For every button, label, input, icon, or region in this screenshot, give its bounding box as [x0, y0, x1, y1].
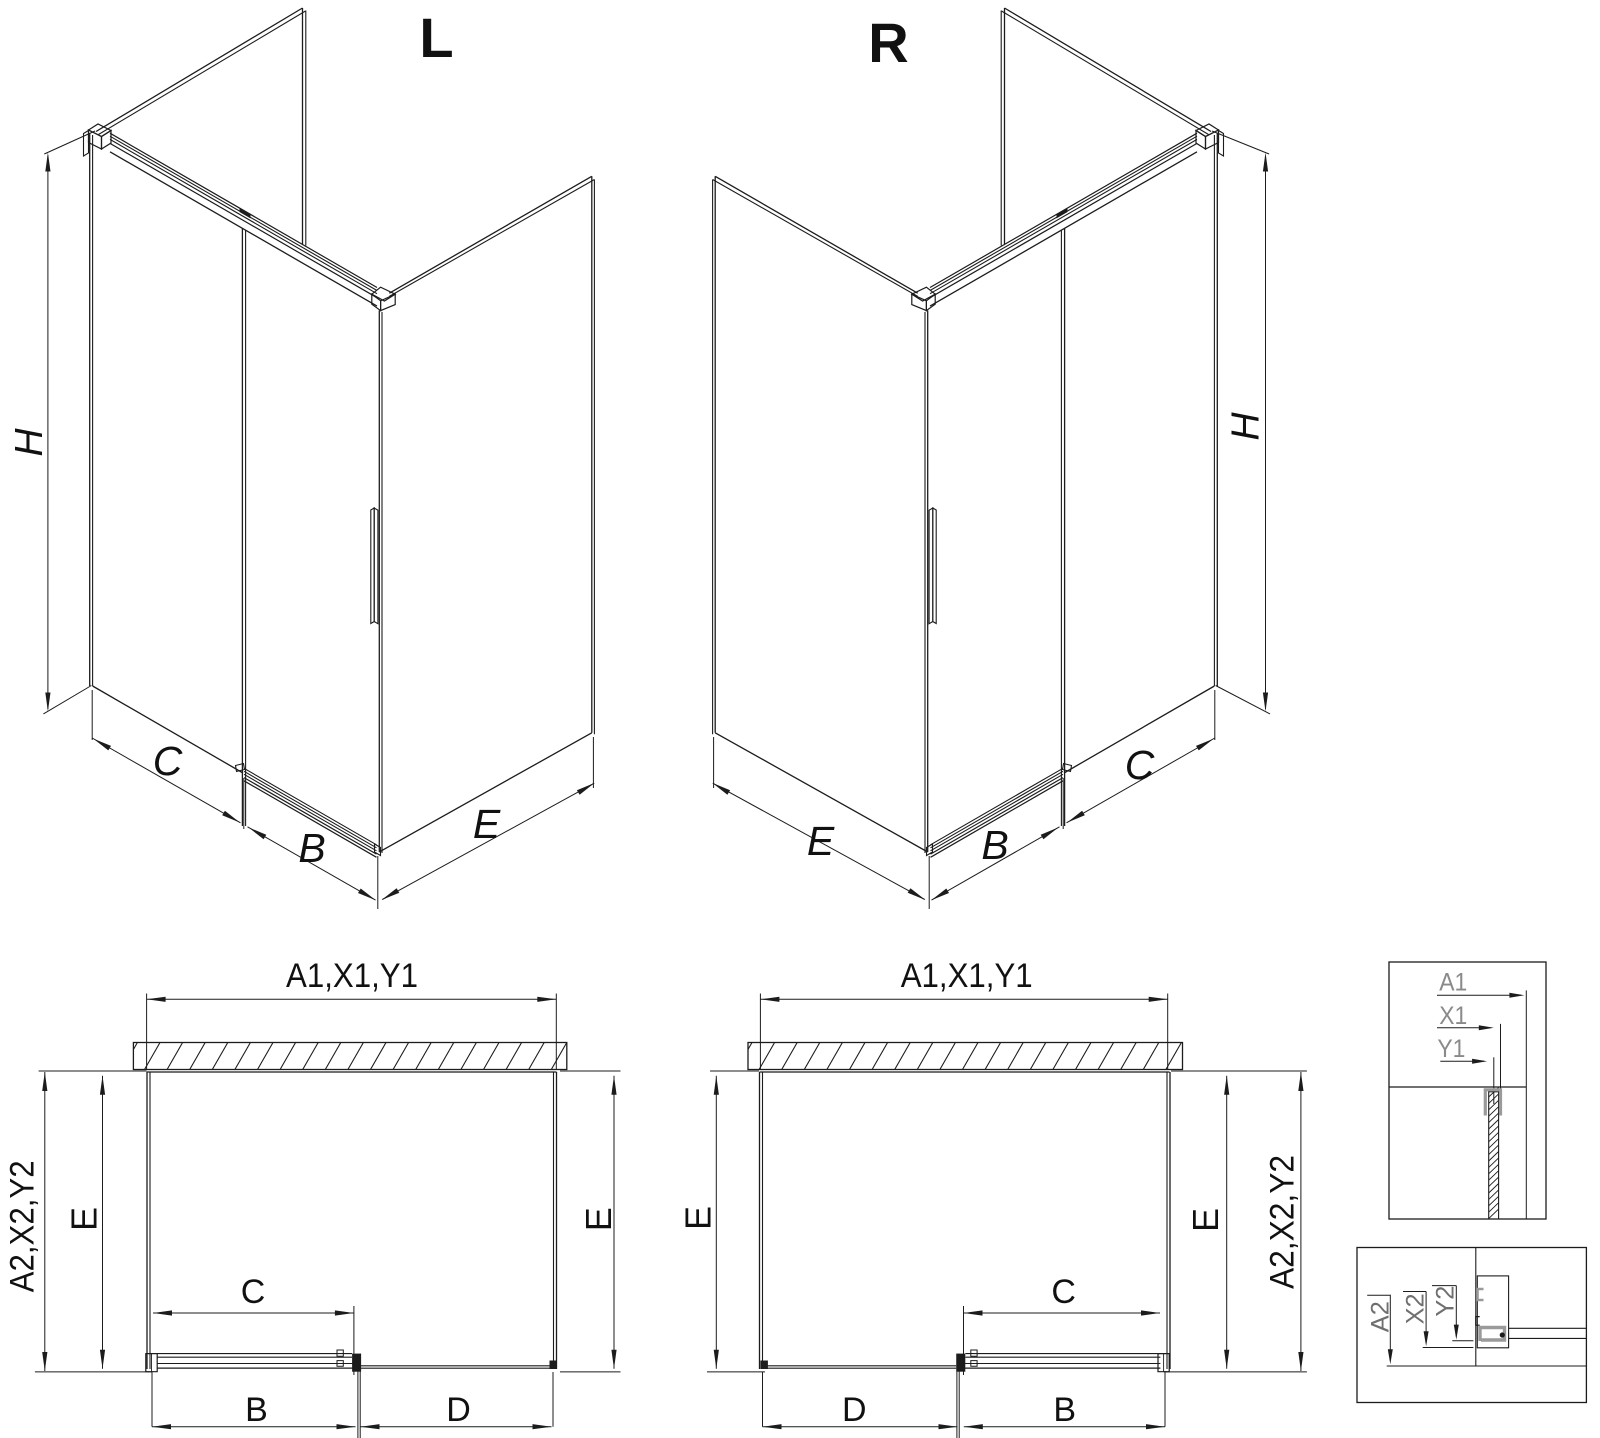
svg-text:R: R	[868, 11, 908, 74]
svg-text:B: B	[298, 825, 325, 871]
svg-text:A1,X1,Y1: A1,X1,Y1	[901, 957, 1033, 995]
svg-text:L: L	[419, 6, 453, 69]
svg-text:A2,X2,Y2: A2,X2,Y2	[4, 1160, 42, 1292]
svg-text:H: H	[8, 428, 51, 457]
svg-text:X1: X1	[1439, 1002, 1467, 1030]
svg-text:E: E	[473, 801, 501, 847]
svg-text:C: C	[153, 738, 183, 784]
svg-text:B: B	[1053, 1391, 1076, 1429]
svg-text:D: D	[446, 1391, 471, 1429]
svg-text:X2: X2	[1402, 1293, 1430, 1324]
svg-text:C: C	[1051, 1273, 1076, 1311]
svg-text:Y1: Y1	[1437, 1035, 1465, 1063]
svg-text:Y2: Y2	[1432, 1286, 1460, 1317]
svg-text:B: B	[245, 1391, 268, 1429]
svg-text:C: C	[241, 1273, 266, 1311]
svg-text:H: H	[1225, 412, 1268, 441]
svg-text:C: C	[1125, 742, 1155, 788]
svg-text:A1,X1,Y1: A1,X1,Y1	[286, 957, 418, 995]
svg-text:D: D	[842, 1391, 867, 1429]
svg-text:B: B	[981, 822, 1008, 868]
svg-text:E: E	[64, 1207, 105, 1231]
svg-text:E: E	[678, 1206, 719, 1230]
svg-text:E: E	[1185, 1208, 1226, 1232]
svg-text:E: E	[578, 1207, 619, 1231]
svg-text:A1: A1	[1439, 968, 1467, 996]
svg-text:A2,X2,Y2: A2,X2,Y2	[1264, 1155, 1302, 1289]
svg-text:E: E	[807, 818, 835, 864]
